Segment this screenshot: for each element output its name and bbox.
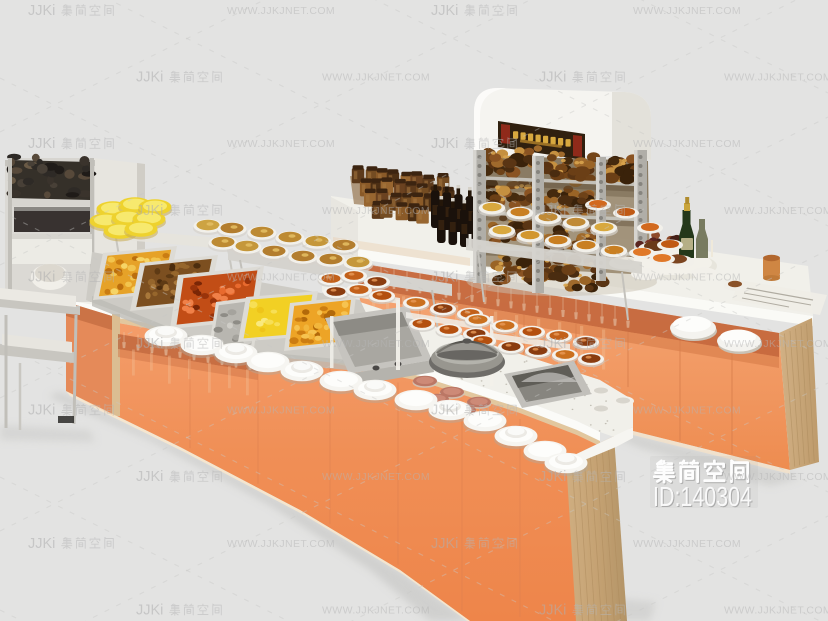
svg-text:WWW.JJKJNET.COM: WWW.JJKJNET.COM <box>633 405 741 417</box>
svg-text:JJKi: JJKi <box>136 336 163 352</box>
svg-text:JJKi: JJKi <box>136 469 163 485</box>
svg-text:WWW.JJKJNET.COM: WWW.JJKJNET.COM <box>633 271 741 283</box>
svg-text:ID:140304: ID:140304 <box>653 481 752 512</box>
svg-text:JJKi: JJKi <box>539 602 566 618</box>
svg-text:WWW.JJKJNET.COM: WWW.JJKJNET.COM <box>724 205 828 217</box>
svg-text:JJKi: JJKi <box>539 469 566 485</box>
svg-text:JJKi: JJKi <box>136 70 163 86</box>
svg-text:WWW.JJKJNET.COM: WWW.JJKJNET.COM <box>227 138 335 150</box>
svg-text:WWW.JJKJNET.COM: WWW.JJKJNET.COM <box>724 72 828 84</box>
svg-text:WWW.JJKJNET.COM: WWW.JJKJNET.COM <box>322 72 430 84</box>
svg-text:JJKi: JJKi <box>136 602 163 618</box>
svg-text:JJKi: JJKi <box>431 136 458 152</box>
svg-text:WWW.JJKJNET.COM: WWW.JJKJNET.COM <box>633 538 741 550</box>
svg-text:JJKi: JJKi <box>28 3 55 19</box>
svg-text:JJKi: JJKi <box>539 70 566 86</box>
svg-text:JJKi: JJKi <box>539 203 566 219</box>
svg-text:JJKi: JJKi <box>28 269 55 285</box>
svg-text:WWW.JJKJNET.COM: WWW.JJKJNET.COM <box>227 5 335 17</box>
svg-text:WWW.JJKJNET.COM: WWW.JJKJNET.COM <box>322 471 430 483</box>
svg-text:JJKi: JJKi <box>28 136 55 152</box>
svg-text:JJKi: JJKi <box>431 269 458 285</box>
svg-text:WWW.JJKJNET.COM: WWW.JJKJNET.COM <box>227 538 335 550</box>
svg-text:WWW.JJKJNET.COM: WWW.JJKJNET.COM <box>322 338 430 350</box>
svg-text:WWW.JJKJNET.COM: WWW.JJKJNET.COM <box>633 5 741 17</box>
svg-text:WWW.JJKJNET.COM: WWW.JJKJNET.COM <box>322 604 430 616</box>
svg-text:WWW.JJKJNET.COM: WWW.JJKJNET.COM <box>633 138 741 150</box>
svg-text:JJKi: JJKi <box>28 536 55 552</box>
svg-text:JJKi: JJKi <box>431 3 458 19</box>
svg-text:JJKi: JJKi <box>136 203 163 219</box>
svg-text:WWW.JJKJNET.COM: WWW.JJKJNET.COM <box>724 604 828 616</box>
svg-text:JJKi: JJKi <box>431 403 458 419</box>
svg-text:WWW.JJKJNET.COM: WWW.JJKJNET.COM <box>322 205 430 217</box>
svg-text:JJKi: JJKi <box>539 336 566 352</box>
svg-text:WWW.JJKJNET.COM: WWW.JJKJNET.COM <box>724 471 828 483</box>
svg-text:WWW.JJKJNET.COM: WWW.JJKJNET.COM <box>227 271 335 283</box>
svg-text:WWW.JJKJNET.COM: WWW.JJKJNET.COM <box>724 338 828 350</box>
svg-text:WWW.JJKJNET.COM: WWW.JJKJNET.COM <box>227 405 335 417</box>
svg-text:JJKi: JJKi <box>28 403 55 419</box>
svg-text:JJKi: JJKi <box>431 536 458 552</box>
